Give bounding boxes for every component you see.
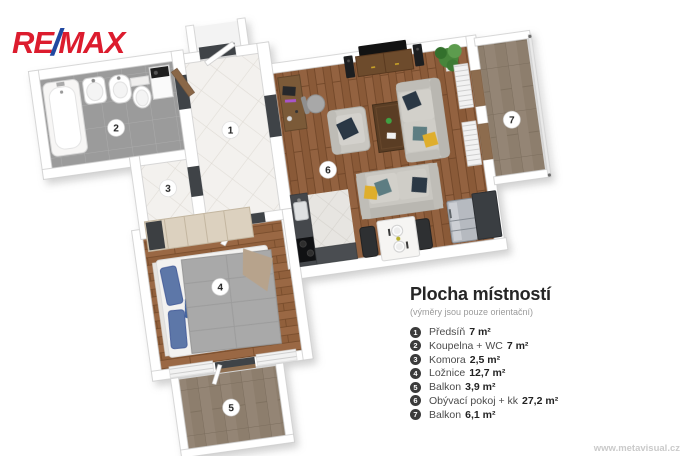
legend-subtitle: (výměry jsou pouze orientační) [410,307,558,317]
pillow [168,310,187,349]
legend-label: Balkon [429,381,461,393]
legend-badge-6: 6 [410,395,421,406]
legend-area: 7 m² [507,340,529,352]
room-badge-1: 1 [228,125,234,136]
floorplan-svg: 1 2 3 4 5 6 7 [0,0,684,456]
legend-badge-2: 2 [410,340,421,351]
legend-label: Koupelna + WC [429,340,503,352]
room-badge-7: 7 [509,115,515,126]
legend-area: 27,2 m² [522,395,558,407]
legend-badge-7: 7 [410,409,421,420]
legend-item-1: 1 Předsíň 7 m² [410,326,558,338]
legend-label: Komora [429,354,466,366]
legend-panel: Plocha místností (výměry jsou pouze orie… [410,284,558,423]
logo-re: RE [12,25,53,60]
remax-logo: RE/MAX [12,22,124,59]
kitchen-sink [293,201,308,221]
legend-item-4: 4 Ložnice 12,7 m² [410,367,558,379]
legend-area: 7 m² [469,326,491,338]
room-badge-6: 6 [325,165,331,176]
legend-item-5: 5 Balkon 3,9 m² [410,381,558,393]
page-background: 1 2 3 4 5 6 7 RE/MAX Plocha místností (v… [0,0,684,456]
room-badge-3: 3 [165,184,171,195]
logo-max: MAX [58,25,124,60]
legend-label: Ložnice [429,367,465,379]
logo-slash: / [51,22,60,63]
legend-item-6: 6 Obývací pokoj + kk 27,2 m² [410,395,558,407]
legend-badge-4: 4 [410,368,421,379]
legend-area: 6,1 m² [465,409,495,421]
legend-item-2: 2 Koupelna + WC 7 m² [410,340,558,352]
legend-label: Obývací pokoj + kk [429,395,518,407]
bed [152,244,285,359]
legend-badge-1: 1 [410,327,421,338]
legend-item-3: 3 Komora 2,5 m² [410,354,558,366]
legend-badge-3: 3 [410,354,421,365]
legend-item-7: 7 Balkon 6,1 m² [410,409,558,421]
armchair [327,106,371,155]
room-badge-4: 4 [217,282,223,293]
room-badge-2: 2 [113,123,119,134]
legend-area: 2,5 m² [470,354,500,366]
legend-area: 3,9 m² [465,381,495,393]
room-badge-5: 5 [228,403,234,414]
legend-label: Balkon [429,409,461,421]
watermark: www.metavisual.cz [594,443,680,454]
legend-area: 12,7 m² [469,367,505,379]
legend-badge-5: 5 [410,382,421,393]
legend-title: Plocha místností [410,284,558,305]
cooktop [296,237,316,263]
legend-label: Předsíň [429,326,465,338]
